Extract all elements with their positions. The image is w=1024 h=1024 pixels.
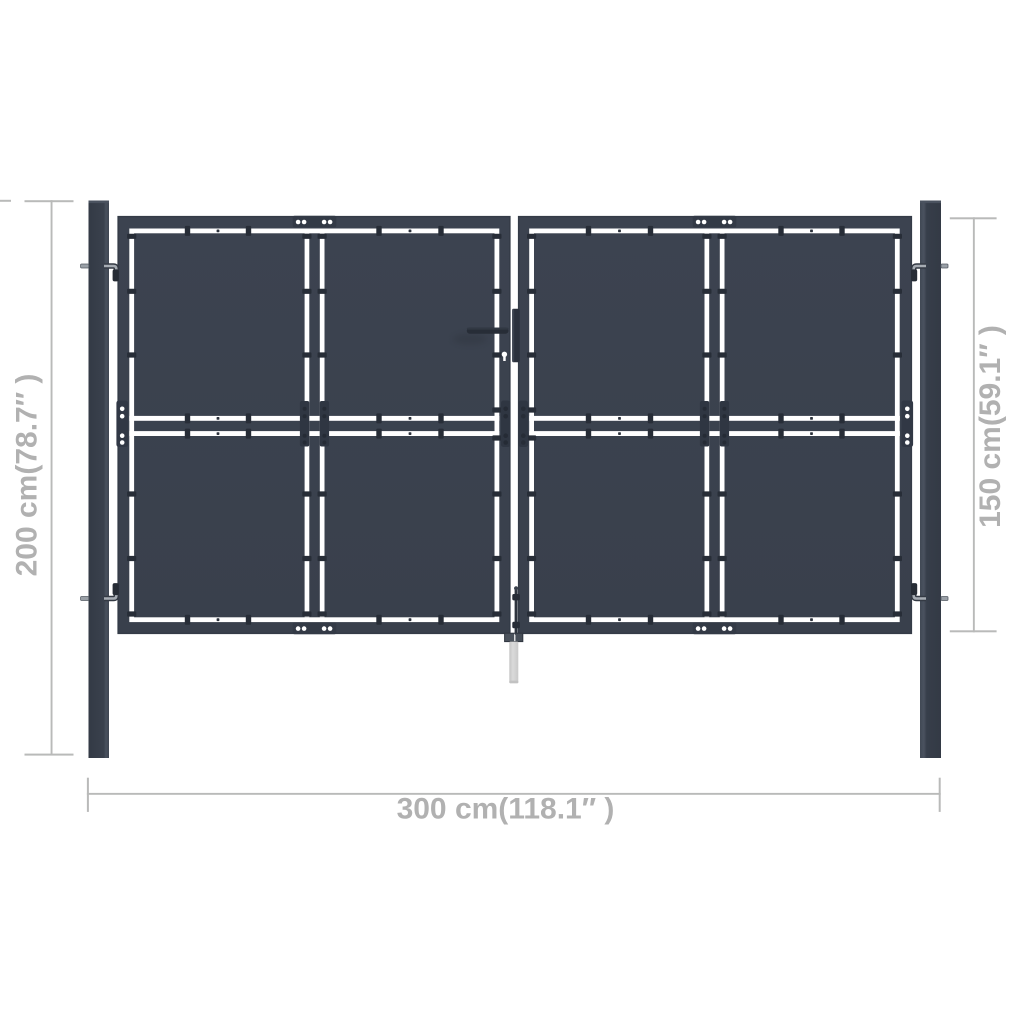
svg-text:300 cm(118.1″ ): 300 cm(118.1″ ) (397, 793, 615, 826)
svg-text:200 cm(78.7″ ): 200 cm(78.7″ ) (11, 374, 44, 577)
svg-text:150 cm(59.1″ ): 150 cm(59.1″ ) (974, 325, 1007, 528)
